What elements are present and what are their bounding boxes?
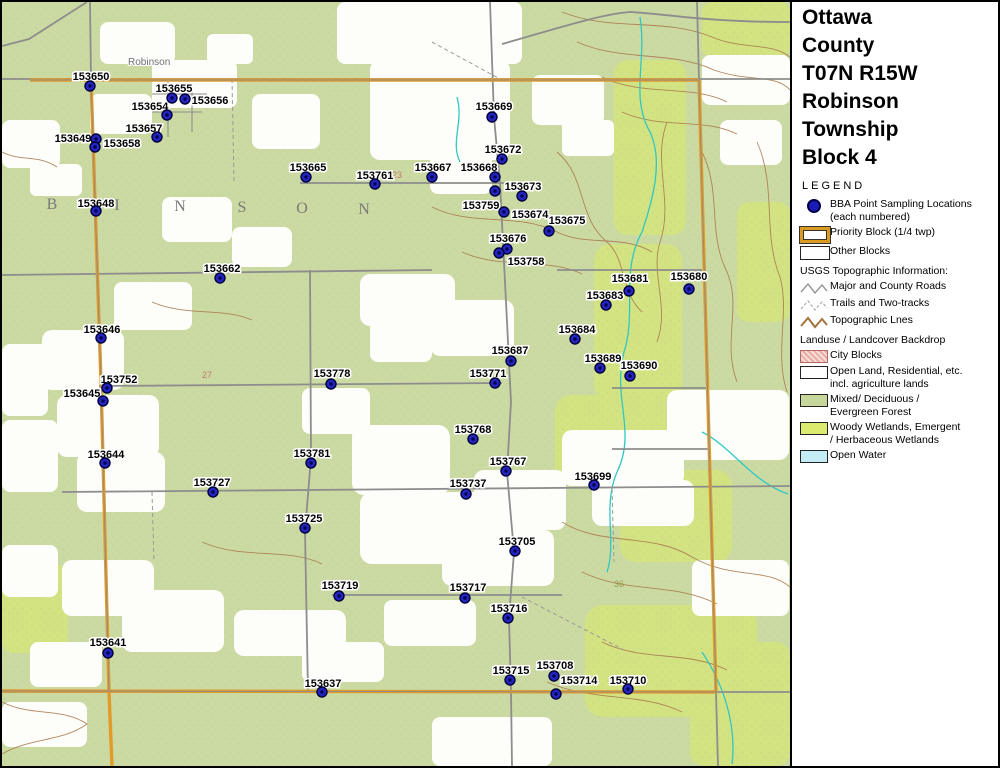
point-core-153675 xyxy=(547,229,550,232)
legend-list: BBA Point Sampling Locations(each number… xyxy=(800,196,998,465)
point-core-153680 xyxy=(687,287,690,290)
township-name-letter: S xyxy=(238,199,247,216)
title-line: Block 4 xyxy=(802,144,918,172)
title-line: T07N R15W xyxy=(802,60,918,88)
township-name-letter: B xyxy=(47,196,58,213)
legend-item-text: Open Land, Residential, etc.incl. agricu… xyxy=(830,365,998,391)
point-label-153658: 153658 xyxy=(104,138,141,150)
township-name-letter: I xyxy=(114,197,119,214)
point-label-153674: 153674 xyxy=(512,209,550,221)
township-name-letter: N xyxy=(174,198,186,215)
legend-item-text: Woody Wetlands, Emergent/ Herbaceous Wet… xyxy=(830,421,998,447)
topo-line-icon xyxy=(800,315,828,329)
info-panel: Ottawa County T07N R15W Robinson Townshi… xyxy=(790,2,1000,766)
title-line: Township xyxy=(802,116,918,144)
point-label-153717: 153717 xyxy=(450,582,487,594)
topo-map-svg[interactable]: RobinsonBINSON232736 1536501536551536561… xyxy=(2,2,790,766)
point-label-153778: 153778 xyxy=(314,368,351,380)
legend-item-open: Open Land, Residential, etc.incl. agricu… xyxy=(800,365,998,391)
point-label-153668: 153668 xyxy=(461,162,498,174)
legend-swatch-city xyxy=(800,350,828,363)
point-core-153673 xyxy=(520,194,523,197)
legend-swatch-column xyxy=(800,297,830,312)
point-label-153708: 153708 xyxy=(537,660,574,672)
point-core-153687 xyxy=(509,359,512,362)
legend-item-text: Topographic Lnes xyxy=(830,314,998,327)
point-core-153778 xyxy=(329,382,332,385)
legend-swatch-column xyxy=(800,226,830,243)
legend-section-header: Landuse / Landcover Backdrop xyxy=(800,334,998,347)
point-core-153716 xyxy=(506,616,509,619)
point-core-153662 xyxy=(218,276,221,279)
legend-swatch-column xyxy=(800,349,830,363)
point-core-153667 xyxy=(430,175,433,178)
point-core-153719 xyxy=(337,594,340,597)
point-core-153681 xyxy=(627,289,630,292)
title-line: County xyxy=(802,32,918,60)
point-core-153658 xyxy=(93,145,96,148)
legend-swatch-priority xyxy=(800,227,830,243)
title-line: Robinson xyxy=(802,88,918,116)
legend-item-road: Major and County Roads xyxy=(800,280,998,295)
legend-item-text: Trails and Two-tracks xyxy=(830,297,998,310)
legend-item-water: Open Water xyxy=(800,449,998,463)
point-core-153715 xyxy=(508,678,511,681)
point-core-153689 xyxy=(598,366,601,369)
point-core-153657 xyxy=(155,135,158,138)
point-label-153656: 153656 xyxy=(192,95,229,107)
legend-swatch-column xyxy=(800,280,830,295)
point-core-153668 xyxy=(493,175,496,178)
town-label-robinson: Robinson xyxy=(128,57,170,68)
point-label-153719: 153719 xyxy=(322,580,359,592)
point-core-153684 xyxy=(573,337,576,340)
section-number: 36 xyxy=(614,579,624,589)
point-core-153674 xyxy=(493,189,496,192)
point-core-153649 xyxy=(94,137,97,140)
legend-swatch-column xyxy=(800,365,830,379)
legend-item-text: Other Blocks xyxy=(830,245,998,258)
legend-item-city: City Blocks xyxy=(800,349,998,363)
point-core-153655 xyxy=(170,96,173,99)
point-core-153656 xyxy=(183,97,186,100)
point-core-153672 xyxy=(500,157,503,160)
legend-item-text: Open Water xyxy=(830,449,998,462)
title-line: Ottawa xyxy=(802,4,918,32)
map-document: RobinsonBINSON232736 1536501536551536561… xyxy=(0,0,1000,768)
point-label-153714: 153714 xyxy=(561,675,599,687)
legend-swatch-open xyxy=(800,366,828,379)
legend-item-forest: Mixed/ Deciduous /Evergreen Forest xyxy=(800,393,998,419)
point-core-153676 xyxy=(505,247,508,250)
point-core-153737 xyxy=(464,492,467,495)
legend-title: LEGEND xyxy=(802,180,865,192)
township-name-letter: O xyxy=(296,200,308,217)
map-area[interactable]: RobinsonBINSON232736 1536501536551536561… xyxy=(2,2,790,766)
legend-swatch-column xyxy=(800,449,830,463)
legend-item-text: Priority Block (1/4 twp) xyxy=(830,226,998,239)
legend-section-header: USGS Topographic Information: xyxy=(800,265,998,278)
point-core-153717 xyxy=(463,596,466,599)
point-core-153752 xyxy=(105,386,108,389)
point-label-153687: 153687 xyxy=(492,345,529,357)
legend-item-dot: BBA Point Sampling Locations(each number… xyxy=(800,198,998,224)
legend-swatch-column xyxy=(800,245,830,260)
legend-item-topo: Topographic Lnes xyxy=(800,314,998,329)
point-core-153648 xyxy=(94,209,97,212)
point-core-153644 xyxy=(103,461,106,464)
point-label-153645: 153645 xyxy=(64,388,101,400)
point-core-153758 xyxy=(497,251,500,254)
trail-line-icon xyxy=(800,298,828,312)
point-core-153725 xyxy=(303,526,306,529)
point-core-153727 xyxy=(211,490,214,493)
point-core-153759 xyxy=(502,210,505,213)
point-label-153759: 153759 xyxy=(463,200,500,212)
point-core-153771 xyxy=(493,381,496,384)
legend-swatch-column xyxy=(800,393,830,407)
map-title: Ottawa County T07N R15W Robinson Townshi… xyxy=(802,4,918,172)
legend-item-trail: Trails and Two-tracks xyxy=(800,297,998,312)
legend-item-text: Mixed/ Deciduous /Evergreen Forest xyxy=(830,393,998,419)
point-core-153699 xyxy=(592,483,595,486)
point-core-153665 xyxy=(304,175,307,178)
point-label-153675: 153675 xyxy=(549,215,586,227)
point-core-153708 xyxy=(552,674,555,677)
legend-swatch-forest xyxy=(800,394,828,407)
legend-swatch-water xyxy=(800,450,828,463)
point-core-153654 xyxy=(165,113,168,116)
point-label-153649: 153649 xyxy=(55,133,92,145)
legend-item-text: City Blocks xyxy=(830,349,998,362)
road-line-icon xyxy=(800,281,828,295)
township-name-letter: N xyxy=(358,201,370,218)
point-core-153767 xyxy=(504,469,507,472)
point-core-153710 xyxy=(626,687,629,690)
section-number: 23 xyxy=(392,170,402,180)
legend-item-priority: Priority Block (1/4 twp) xyxy=(800,226,998,243)
legend-item-text: Major and County Roads xyxy=(830,280,998,293)
point-core-153637 xyxy=(320,690,323,693)
point-label-153758: 153758 xyxy=(508,256,545,268)
point-core-153690 xyxy=(628,374,631,377)
point-label-153737: 153737 xyxy=(450,478,487,490)
point-core-153781 xyxy=(309,461,312,464)
point-label-153681: 153681 xyxy=(612,273,649,285)
point-core-153669 xyxy=(490,115,493,118)
point-core-153761 xyxy=(373,182,376,185)
point-label-153680: 153680 xyxy=(671,271,708,283)
point-core-153650 xyxy=(88,84,91,87)
legend-swatch-column xyxy=(800,198,830,213)
point-label-153771: 153771 xyxy=(470,368,507,380)
legend-swatch-dot xyxy=(807,199,821,213)
point-label-153641: 153641 xyxy=(90,637,127,649)
legend-item-block: Other Blocks xyxy=(800,245,998,260)
point-label-153690: 153690 xyxy=(621,360,658,372)
point-core-153641 xyxy=(106,651,109,654)
legend-swatch-column xyxy=(800,421,830,435)
point-label-153676: 153676 xyxy=(490,233,527,245)
point-core-153768 xyxy=(471,437,474,440)
legend-item-text: BBA Point Sampling Locations(each number… xyxy=(830,198,998,224)
legend-swatch-wetland xyxy=(800,422,828,435)
point-core-153683 xyxy=(604,303,607,306)
point-core-153646 xyxy=(99,336,102,339)
legend-swatch-block xyxy=(800,246,830,260)
legend-item-wetland: Woody Wetlands, Emergent/ Herbaceous Wet… xyxy=(800,421,998,447)
point-core-153645 xyxy=(101,399,104,402)
point-core-153705 xyxy=(513,549,516,552)
legend-swatch-column xyxy=(800,314,830,329)
section-number: 27 xyxy=(202,370,212,380)
point-label-153669: 153669 xyxy=(476,101,513,113)
point-core-153714 xyxy=(554,692,557,695)
